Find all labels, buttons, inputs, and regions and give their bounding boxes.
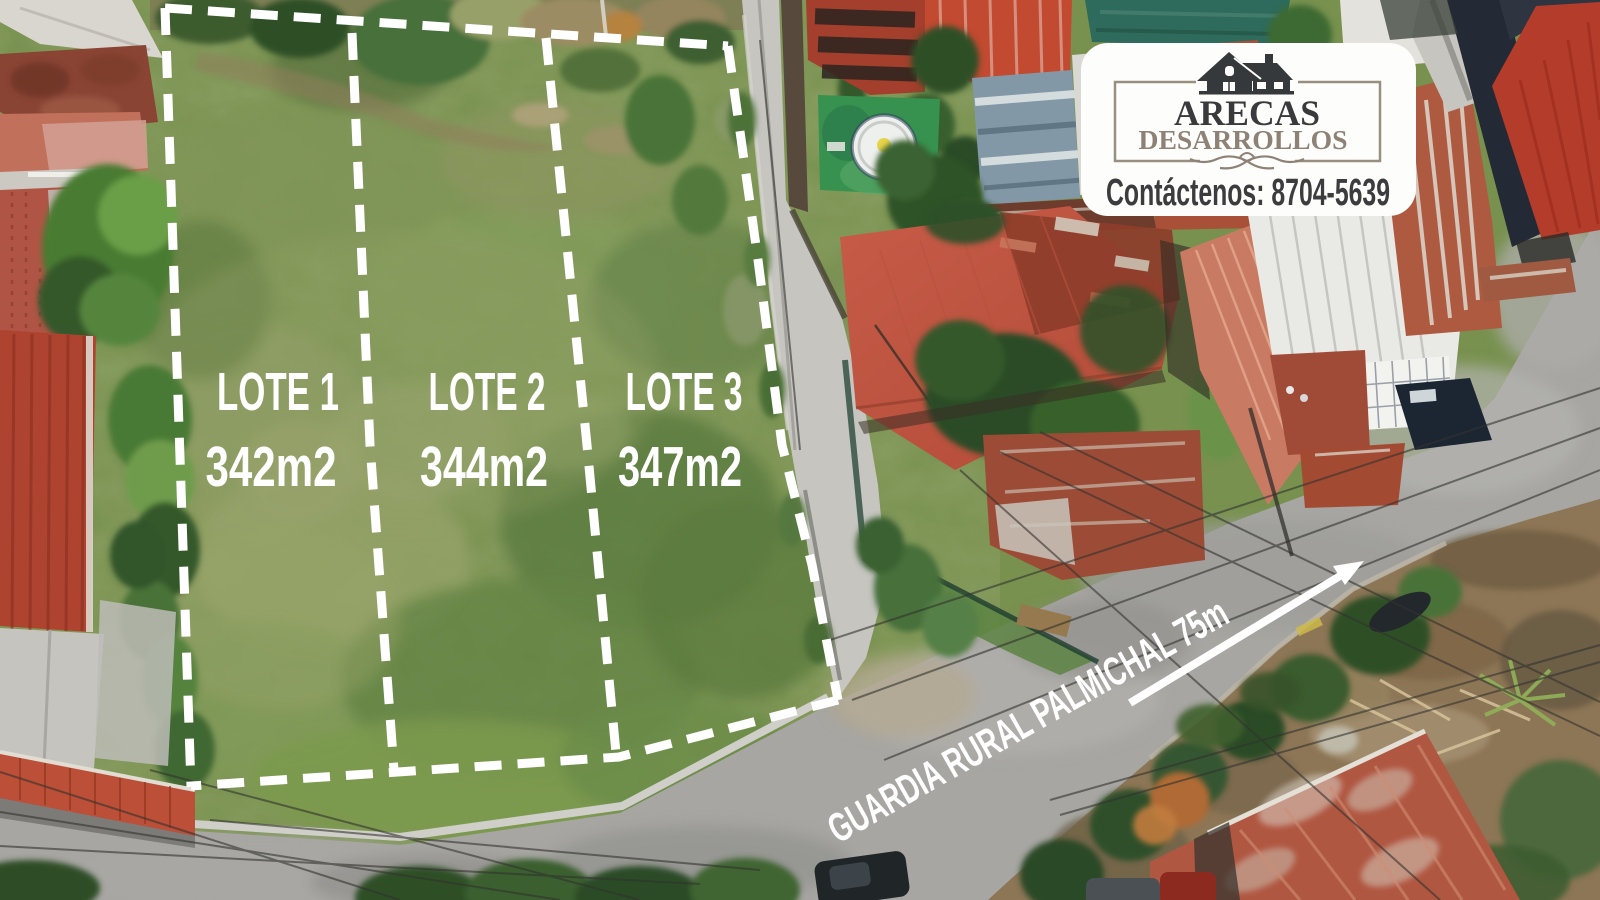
svg-text:347m2: 347m2: [618, 435, 742, 499]
svg-text:344m2: 344m2: [420, 435, 548, 499]
svg-text:342m2: 342m2: [206, 435, 337, 499]
svg-text:LOTE 1: LOTE 1: [217, 362, 339, 422]
svg-text:DESARROLLOS: DESARROLLOS: [1139, 125, 1348, 155]
svg-text:Contáctenos: 8704-5639: Contáctenos: 8704-5639: [1106, 172, 1390, 214]
svg-text:LOTE 3: LOTE 3: [626, 362, 743, 422]
svg-text:LOTE 2: LOTE 2: [429, 362, 546, 422]
